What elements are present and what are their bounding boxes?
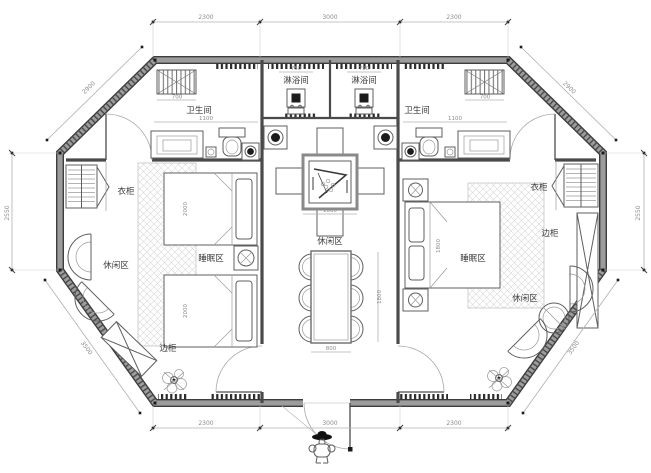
- dim-rack-left: 700: [172, 95, 183, 101]
- room-label-leisure-center: 休闲区: [317, 236, 343, 247]
- dim-dining-length: 1800: [377, 290, 383, 304]
- dim-top-center: 3000: [322, 14, 337, 21]
- dim-bed-bottom: 2000: [183, 304, 189, 318]
- dim-dining-width: 800: [326, 346, 337, 352]
- floor-drain-icon: [206, 147, 216, 157]
- dim-bed-right: 1800: [436, 239, 442, 253]
- dim-diag-top-right: 2900: [561, 80, 577, 96]
- side-cabinet-right-icon: [577, 213, 598, 328]
- plant-icon: [163, 370, 187, 394]
- dim-bath-left: 1100: [199, 116, 213, 122]
- door-bath-right: [510, 114, 555, 160]
- dining-table: [299, 251, 363, 343]
- wardrobe-left-icon: [66, 162, 109, 211]
- toilet-icon: [416, 128, 442, 156]
- dim-bath-right: 1100: [448, 116, 462, 122]
- shower-drain-icon: [355, 89, 373, 107]
- door-bath-left: [106, 114, 152, 160]
- dim-bottom-right: 2300: [446, 420, 461, 427]
- dim-top-left: 2300: [198, 14, 213, 21]
- dim-bottom-left: 2300: [198, 420, 213, 427]
- bedside-table-icon: [234, 246, 258, 270]
- sink-counter-icon: [458, 131, 510, 158]
- room-label-cabinet-left: 边柜: [159, 343, 177, 354]
- floor-plan-drawing: 700 1100 700 1100: [0, 0, 651, 473]
- room-label-shower-right: 淋浴间: [351, 75, 377, 86]
- towel-rack-icon: [157, 70, 196, 94]
- washer-icon: [402, 143, 419, 160]
- toilet-icon: [219, 128, 245, 156]
- room-label-sleep-right: 睡眠区: [460, 254, 486, 264]
- towel-rack-icon: [465, 70, 504, 94]
- water-heater-right-icon: [374, 126, 397, 149]
- dim-bed-top: 2000: [183, 202, 189, 216]
- door-bedroom-left: [216, 346, 262, 392]
- bed-single-top-icon: [164, 173, 257, 245]
- dim-shower-left: 750: [291, 66, 302, 72]
- room-label-cabinet-right: 边柜: [541, 228, 559, 239]
- dim-diag-bottom-right: 3500: [566, 340, 581, 357]
- washer-icon: [242, 143, 259, 160]
- entry-statue-figure: [309, 431, 335, 463]
- nightstand-top-icon: [403, 179, 428, 201]
- floor-drain-icon: [445, 147, 455, 157]
- dimension-lines: 2300 3000 2300 2300 3000 2300 2550 2550 …: [4, 14, 647, 431]
- room-label-leisure-left: 休闲区: [103, 260, 129, 271]
- plant-icon: [488, 368, 512, 392]
- square-table: [276, 128, 384, 236]
- dim-square-table: 1000: [323, 208, 337, 214]
- door-bedroom-right: [398, 346, 444, 392]
- shower-drain-icon: [287, 89, 305, 107]
- floor-plan-canvas: 700 1100 700 1100: [0, 0, 651, 473]
- room-label-leisure-right: 休闲区: [512, 293, 538, 304]
- lounge-center: 1000 休闲区 1800 800: [264, 126, 397, 352]
- room-label-wardrobe-left: 衣柜: [117, 186, 135, 197]
- fan-chair-icon: [68, 234, 91, 280]
- room-label-bath-left: 卫生间: [186, 105, 212, 116]
- dim-bottom-center: 3000: [322, 420, 337, 427]
- bed-single-bottom-icon: [164, 275, 257, 347]
- shower-left: 750 淋浴间: [279, 66, 313, 114]
- dim-rack-right: 700: [480, 95, 491, 101]
- room-label-shower-left: 淋浴间: [283, 75, 309, 86]
- room-label-wardrobe-right: 衣柜: [530, 182, 548, 193]
- dim-left-side: 2550: [4, 205, 11, 220]
- room-label-bath-right: 卫生间: [404, 105, 430, 116]
- wardrobe-right-icon: [552, 161, 598, 210]
- dim-right-side: 2550: [635, 205, 642, 220]
- room-label-sleep-left: 睡眠区: [198, 254, 224, 264]
- bed-double-icon: [405, 202, 500, 288]
- dim-shower-right: 750: [359, 66, 370, 72]
- dim-diag-bottom-left: 3500: [79, 340, 94, 357]
- water-heater-left-icon: [264, 126, 287, 149]
- dim-top-right: 2300: [446, 14, 461, 21]
- shower-right: 750 淋浴间: [347, 66, 381, 114]
- nightstand-bottom-icon: [403, 289, 428, 311]
- sink-counter-icon: [151, 131, 203, 158]
